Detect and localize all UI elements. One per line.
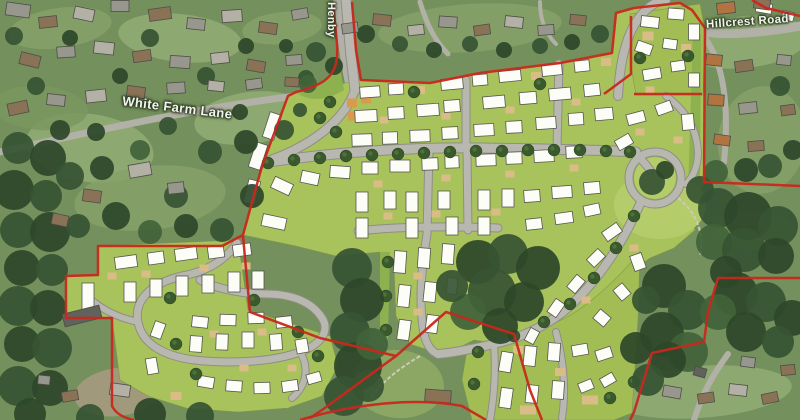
proposed-building [423, 281, 437, 302]
street-tree-highlight [446, 148, 450, 152]
street-tree-highlight [612, 244, 616, 248]
woodland-tree [591, 25, 609, 43]
street-tree-highlight [606, 394, 610, 398]
proposed-building [406, 218, 418, 238]
proposed-building [523, 345, 537, 366]
woodland-tree [5, 27, 23, 45]
parking-court [570, 165, 579, 172]
proposed-building [252, 271, 264, 289]
existing-roof [728, 384, 747, 397]
proposed-building [502, 189, 514, 207]
proposed-building [417, 103, 440, 117]
street-tree-highlight [316, 114, 320, 118]
street-tree-highlight [684, 52, 688, 56]
street-tree-highlight [524, 146, 528, 150]
existing-roof [208, 80, 225, 92]
street-tree-highlight [314, 352, 318, 356]
existing-roof [210, 52, 229, 65]
parking-court [432, 211, 441, 218]
proposed-building [242, 332, 254, 348]
street-tree-highlight [550, 146, 554, 150]
woodland-tree [141, 29, 159, 47]
proposed-building [228, 272, 240, 292]
parking-court [555, 368, 565, 376]
existing-roof [38, 375, 51, 385]
woodland-tree [232, 104, 248, 120]
proposed-building [547, 343, 560, 362]
proposed-building [442, 127, 459, 140]
proposed-building [483, 95, 506, 109]
parking-court [108, 273, 117, 280]
plan-road [557, 64, 559, 149]
existing-roof [341, 22, 358, 34]
woodland-tree [234, 130, 258, 154]
woodland-tree [56, 162, 84, 190]
proposed-building [382, 132, 397, 145]
proposed-building [281, 379, 298, 392]
woodland-tree [87, 123, 105, 141]
proposed-building [478, 217, 490, 235]
proposed-building [388, 107, 405, 120]
parking-court [582, 396, 598, 405]
existing-roof [46, 94, 65, 107]
existing-roof [372, 14, 391, 27]
parking-court [374, 181, 383, 188]
proposed-building [124, 282, 136, 302]
existing-roof [93, 41, 114, 55]
parking-court [442, 175, 451, 182]
woodland-tree [656, 161, 674, 179]
existing-roof [570, 14, 587, 26]
proposed-building [397, 319, 412, 340]
proposed-building [472, 74, 488, 86]
parking-court [601, 58, 611, 66]
proposed-building [474, 123, 495, 136]
existing-roof [780, 104, 795, 116]
woodland-tree [496, 42, 512, 58]
existing-roof [167, 82, 186, 94]
street-tree-highlight [636, 54, 640, 58]
proposed-building [174, 247, 197, 262]
proposed-building [584, 181, 601, 194]
proposed-building [689, 24, 700, 40]
proposed-building [216, 334, 229, 350]
existing-roof [186, 18, 205, 31]
parking-court [572, 99, 581, 106]
existing-roof [132, 49, 151, 62]
proposed-building [595, 107, 614, 121]
existing-roof [748, 140, 765, 151]
proposed-building [438, 191, 450, 209]
woodland-tree [138, 220, 162, 244]
woodland-tree [710, 256, 742, 288]
proposed-building [640, 16, 659, 29]
woodland-tree [762, 326, 794, 358]
proposed-building [506, 121, 523, 134]
woodland-tree [238, 38, 254, 54]
parking-court [258, 329, 267, 336]
woodland-tree [357, 25, 375, 43]
street-tree-highlight [410, 88, 414, 92]
existing-roof [258, 21, 277, 34]
woodland-tree [726, 312, 766, 352]
proposed-building [176, 276, 188, 296]
proposed-building [114, 255, 137, 270]
plan-road [467, 151, 468, 230]
existing-roof [57, 46, 76, 58]
woodland-tree [564, 34, 580, 50]
proposed-building [478, 190, 490, 210]
proposed-building [356, 192, 368, 212]
proposed-building [410, 130, 430, 143]
existing-roof [439, 16, 458, 28]
woodland-tree [62, 30, 78, 46]
proposed-building [330, 165, 351, 178]
parking-court [674, 137, 683, 144]
street-tree-highlight [384, 258, 388, 262]
street-tree-highlight [474, 348, 478, 352]
parking-court [200, 265, 209, 272]
existing-roof [734, 59, 753, 72]
street-tree-highlight [394, 150, 398, 154]
street-tree-highlight [332, 128, 336, 132]
existing-roof [285, 77, 300, 87]
existing-roof [245, 78, 262, 90]
proposed-building [441, 244, 454, 265]
woodland-tree [279, 39, 293, 53]
parking-court [384, 213, 393, 220]
proposed-building [536, 116, 557, 129]
street-tree-highlight [472, 147, 476, 151]
proposed-building [524, 189, 541, 202]
woodland-tree [4, 250, 40, 286]
proposed-building [393, 251, 407, 274]
proposed-building [681, 114, 694, 131]
woodland-tree [112, 68, 128, 84]
proposed-building [388, 83, 404, 95]
proposed-building [269, 334, 282, 351]
woodland-tree [130, 140, 150, 160]
woodland-tree [50, 120, 70, 140]
street-tree-highlight [250, 296, 254, 300]
proposed-building [571, 343, 589, 357]
proposed-building [295, 338, 309, 354]
parking-court [506, 107, 515, 114]
street-tree-highlight [192, 370, 196, 374]
existing-roof [697, 392, 714, 404]
existing-roof [738, 102, 757, 115]
existing-roof [473, 24, 490, 36]
parking-court [520, 406, 536, 415]
proposed-building [390, 160, 410, 172]
plan-road [358, 227, 498, 231]
proposed-building [444, 99, 461, 112]
parking-court [171, 392, 182, 400]
street-tree-highlight [382, 326, 386, 330]
woodland-tree [36, 254, 68, 286]
street-tree-highlight [540, 318, 544, 322]
proposed-building [360, 86, 381, 98]
woodland-tree [734, 158, 758, 182]
street-tree-highlight [498, 147, 502, 151]
woodland-tree [198, 140, 222, 164]
proposed-building [417, 248, 430, 269]
woodland-tree [426, 42, 442, 58]
existing-roof [781, 364, 796, 375]
proposed-building [662, 38, 677, 50]
parking-court [288, 365, 297, 372]
existing-roof [713, 134, 730, 146]
proposed-building [406, 192, 418, 212]
proposed-building [551, 381, 564, 400]
proposed-building [568, 112, 584, 125]
existing-roof [222, 9, 243, 22]
parking-court [442, 113, 451, 120]
existing-roof [504, 16, 523, 29]
woodland-tree [462, 36, 478, 52]
existing-roof [716, 2, 735, 15]
existing-roof [38, 16, 57, 29]
woodland-tree [356, 328, 388, 360]
existing-roof [408, 24, 425, 36]
parking-court [414, 273, 423, 280]
street-tree-highlight [290, 156, 294, 160]
street-tree-highlight [576, 146, 580, 150]
existing-roof [167, 182, 184, 195]
proposed-building [254, 382, 270, 394]
woodland-tree [758, 154, 782, 178]
proposed-building [226, 380, 243, 392]
proposed-building [356, 218, 368, 238]
woodland-tree [770, 76, 790, 96]
street-tree-highlight [626, 148, 630, 152]
entrance-court [347, 99, 357, 108]
proposed-building [506, 152, 522, 165]
street-tree-highlight [172, 340, 176, 344]
parking-court [492, 209, 501, 216]
existing-roof [777, 54, 792, 65]
proposed-building [150, 279, 162, 297]
street-tree-highlight [326, 98, 330, 102]
proposed-building [189, 336, 202, 353]
woodland-tree [210, 218, 234, 242]
woodland-tree [102, 202, 130, 230]
proposed-building [202, 275, 214, 293]
street-tree-highlight [342, 152, 346, 156]
proposed-building [422, 158, 438, 171]
proposed-building [549, 87, 572, 101]
proposed-building [525, 218, 542, 231]
map-canvas [0, 0, 800, 420]
street-tree-highlight [566, 300, 570, 304]
woodland-tree [159, 117, 177, 135]
street-tree-highlight [368, 151, 372, 155]
proposed-building [232, 243, 251, 257]
proposed-building [519, 91, 537, 104]
existing-roof [170, 55, 191, 68]
woodland-tree [2, 132, 34, 164]
parking-court [240, 365, 249, 372]
existing-roof [286, 54, 303, 65]
woodland-tree [632, 286, 660, 314]
proposed-building [668, 8, 685, 20]
proposed-building [145, 357, 159, 375]
existing-roof [111, 1, 129, 12]
proposed-building [362, 162, 378, 174]
woodland-tree [174, 214, 198, 238]
parking-court [646, 87, 655, 94]
street-tree-highlight [602, 147, 606, 151]
street-tree-highlight [630, 212, 634, 216]
parking-court [142, 271, 151, 278]
proposed-building [220, 314, 236, 326]
street-tree-highlight [470, 380, 474, 384]
woodland-tree [306, 42, 326, 62]
street-tree-highlight [536, 80, 540, 84]
woodland-tree [392, 36, 408, 52]
proposed-building [352, 134, 372, 147]
proposed-building [191, 316, 208, 329]
proposed-building [689, 73, 700, 87]
parking-court [380, 117, 389, 124]
existing-roof [148, 7, 171, 22]
existing-roof [425, 389, 452, 403]
street-tree-highlight [166, 294, 170, 298]
proposed-building [147, 251, 165, 265]
parking-court [414, 309, 423, 316]
proposed-building [574, 60, 590, 73]
existing-roof [82, 189, 101, 203]
proposed-building [499, 387, 514, 408]
proposed-building [554, 211, 573, 224]
proposed-building [552, 185, 573, 198]
woodland-tree [90, 156, 114, 180]
street-tree-highlight [420, 149, 424, 153]
aerial-masterplan-map: Henby White Farm Lane Hillcrest Road [0, 0, 800, 420]
street-tree-highlight [316, 154, 320, 158]
parking-court [630, 245, 639, 252]
street-tree-highlight [590, 274, 594, 278]
road-label-henby: Henby [325, 0, 337, 38]
existing-roof [538, 24, 555, 35]
parking-court [506, 171, 515, 178]
woodland-tree [436, 270, 468, 302]
existing-roof [708, 94, 725, 106]
woodland-tree [66, 214, 90, 238]
woodland-tree [32, 328, 72, 368]
parking-court [636, 129, 645, 136]
existing-roof [740, 356, 755, 368]
proposed-building [583, 83, 600, 97]
woodland-tree [30, 180, 62, 212]
woodland-tree [30, 290, 66, 326]
existing-roof [85, 89, 106, 103]
woodland-tree [27, 77, 45, 95]
woodland-tree [686, 176, 714, 204]
woodland-tree [532, 38, 548, 54]
woodland-tree [620, 332, 652, 364]
existing-roof [5, 2, 31, 18]
proposed-building [446, 217, 458, 235]
woodland-tree [293, 103, 307, 117]
proposed-building [670, 60, 685, 72]
proposed-building [384, 191, 396, 209]
proposed-building [397, 284, 411, 307]
parking-court [643, 32, 654, 41]
parking-court [582, 297, 591, 304]
existing-roof [705, 54, 722, 67]
woodland-tree [758, 238, 794, 274]
proposed-building [355, 109, 378, 122]
